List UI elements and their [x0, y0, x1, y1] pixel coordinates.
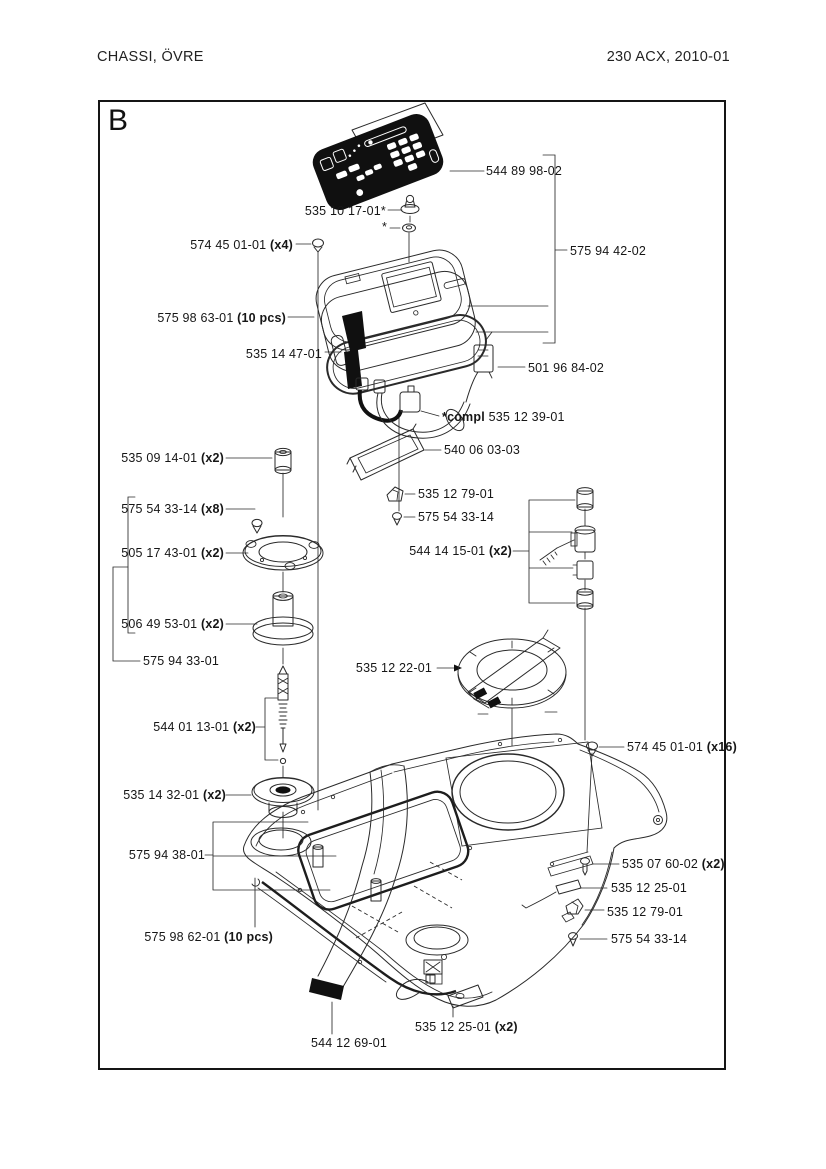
part-label: 535 12 22-01 — [356, 660, 432, 676]
part-label: 535 12 79-01 — [607, 904, 683, 920]
part-label: 535 09 14-01 (x2) — [121, 450, 224, 466]
part-label: *compl 535 12 39-01 — [442, 409, 565, 425]
part-label: 544 14 15-01 (x2) — [409, 543, 512, 559]
part-label: 535 07 60-02 (x2) — [622, 856, 725, 872]
part-label: 535 12 79-01 — [418, 486, 494, 502]
part-label: 540 06 03-03 — [444, 442, 520, 458]
part-label: 575 54 33-14 — [418, 509, 494, 525]
section-letter: B — [108, 104, 128, 138]
part-label: 506 49 53-01 (x2) — [121, 616, 224, 632]
part-label: 544 01 13-01 (x2) — [153, 719, 256, 735]
part-label: 575 54 33-14 — [611, 931, 687, 947]
part-label: 535 14 32-01 (x2) — [123, 787, 226, 803]
part-label: 575 94 33-01 — [143, 653, 219, 669]
part-label: 544 89 98-02 — [486, 163, 562, 179]
part-label: 575 94 38-01 — [129, 847, 205, 863]
part-label: 535 14 47-01 — [246, 346, 322, 362]
part-label: 575 98 62-01 (10 pcs) — [144, 929, 273, 945]
page-title: CHASSI, ÖVRE — [97, 49, 204, 65]
part-label: 574 45 01-01 (x16) — [627, 739, 737, 755]
part-label: 544 12 69-01 — [311, 1035, 387, 1051]
part-label: 575 54 33-14 (x8) — [121, 501, 224, 517]
part-label: 505 17 43-01 (x2) — [121, 545, 224, 561]
part-label: 535 12 25-01 — [611, 880, 687, 896]
part-label-asterisk: * — [382, 219, 387, 235]
part-label: 535 10 17-01* — [305, 203, 386, 219]
part-label: 535 12 25-01 (x2) — [415, 1019, 518, 1035]
model-revision: 230 ACX, 2010-01 — [607, 49, 730, 65]
part-label: 575 98 63-01 (10 pcs) — [157, 310, 286, 326]
part-label: 501 96 84-02 — [528, 360, 604, 376]
part-label: 574 45 01-01 (x4) — [190, 237, 293, 253]
part-label: 575 94 42-02 — [570, 243, 646, 259]
parts-catalog-page: CHASSI, ÖVRE 230 ACX, 2010-01 B — [0, 0, 826, 1169]
